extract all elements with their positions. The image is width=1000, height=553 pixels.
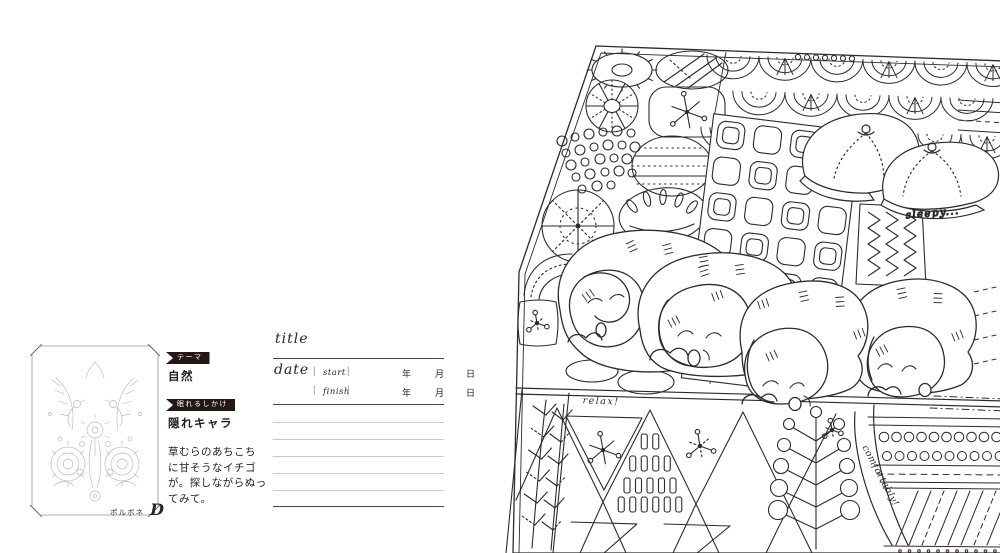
- coloring-illustration: sleepy...: [0, 0, 1000, 553]
- label-relax: relax!: [582, 395, 619, 407]
- puppy-4: [849, 279, 976, 397]
